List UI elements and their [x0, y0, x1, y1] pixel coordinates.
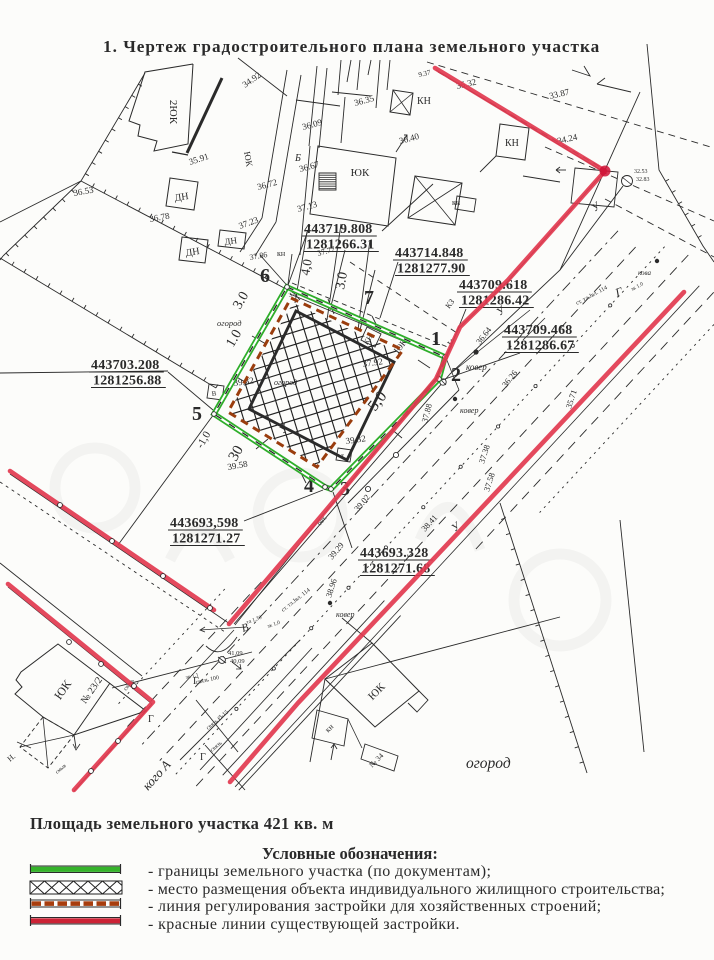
svg-text:41,09: 41,09 — [228, 650, 243, 657]
svg-text:ДН: ДН — [174, 191, 189, 204]
svg-text:ДН: ДН — [224, 235, 238, 247]
svg-text:2ЮК: 2ЮК — [167, 100, 179, 125]
svg-text:443719.808: 443719.808 — [304, 222, 373, 237]
svg-text:1: 1 — [431, 328, 441, 350]
svg-text:Г: Г — [148, 714, 154, 725]
svg-text:кова: кова — [638, 269, 651, 277]
svg-text:КН: КН — [505, 138, 519, 149]
svg-text:- границы земельного участка (: - границы земельного участка (по докумен… — [148, 863, 491, 880]
svg-text:ковер: ковер — [460, 406, 478, 415]
svg-text:огород: огород — [466, 755, 511, 772]
svg-text:443693.328: 443693.328 — [360, 546, 429, 561]
svg-text:ЮК: ЮК — [351, 167, 370, 179]
svg-text:443709.468: 443709.468 — [504, 323, 573, 338]
svg-text:Г: Г — [200, 752, 206, 763]
svg-text:443714.848: 443714.848 — [395, 246, 464, 261]
svg-text:7: 7 — [364, 287, 374, 309]
svg-text:- красные линии существующей з: - красные линии существующей застройки. — [148, 916, 460, 933]
svg-text:КН: КН — [417, 96, 431, 107]
svg-text:443693,598: 443693,598 — [170, 516, 239, 531]
svg-text:443709.618: 443709.618 — [459, 278, 528, 293]
svg-text:кн: кн — [277, 249, 286, 258]
svg-text:ДН: ДН — [185, 246, 200, 259]
svg-text:Б: Б — [294, 153, 301, 164]
svg-text:443703.208: 443703.208 — [91, 358, 160, 373]
svg-text:32.53: 32.53 — [634, 169, 648, 175]
svg-text:1. Чертеж градостроительного: 1. Чертеж градостроительного плана земел… — [103, 37, 600, 56]
svg-text:5: 5 — [192, 403, 202, 425]
svg-text:40,09: 40,09 — [230, 658, 245, 665]
svg-text:- линия регулирования застройк: - линия регулирования застройки для хозя… — [148, 898, 601, 915]
svg-text:огород: огород — [217, 318, 242, 328]
svg-text:Условные обозначения:: Условные обозначения: — [262, 844, 438, 863]
svg-text:1281286.67: 1281286.67 — [506, 339, 575, 354]
svg-text:1281256.88: 1281256.88 — [93, 374, 162, 389]
svg-text:- место размещения объекта инд: - место размещения объекта индивидуально… — [148, 881, 665, 898]
svg-text:2: 2 — [451, 364, 461, 386]
svg-text:ковер: ковер — [336, 610, 354, 619]
svg-text:1281277.90: 1281277.90 — [397, 262, 466, 277]
svg-text:1281266.31: 1281266.31 — [306, 238, 375, 253]
svg-text:Площадь земельного участка 421: Площадь земельного участка 421 кв. м — [30, 814, 334, 833]
svg-text:1281271.27: 1281271.27 — [172, 532, 241, 547]
svg-text:1281286.42: 1281286.42 — [461, 294, 530, 309]
svg-text:32.83: 32.83 — [636, 177, 650, 183]
svg-text:6: 6 — [260, 265, 270, 287]
